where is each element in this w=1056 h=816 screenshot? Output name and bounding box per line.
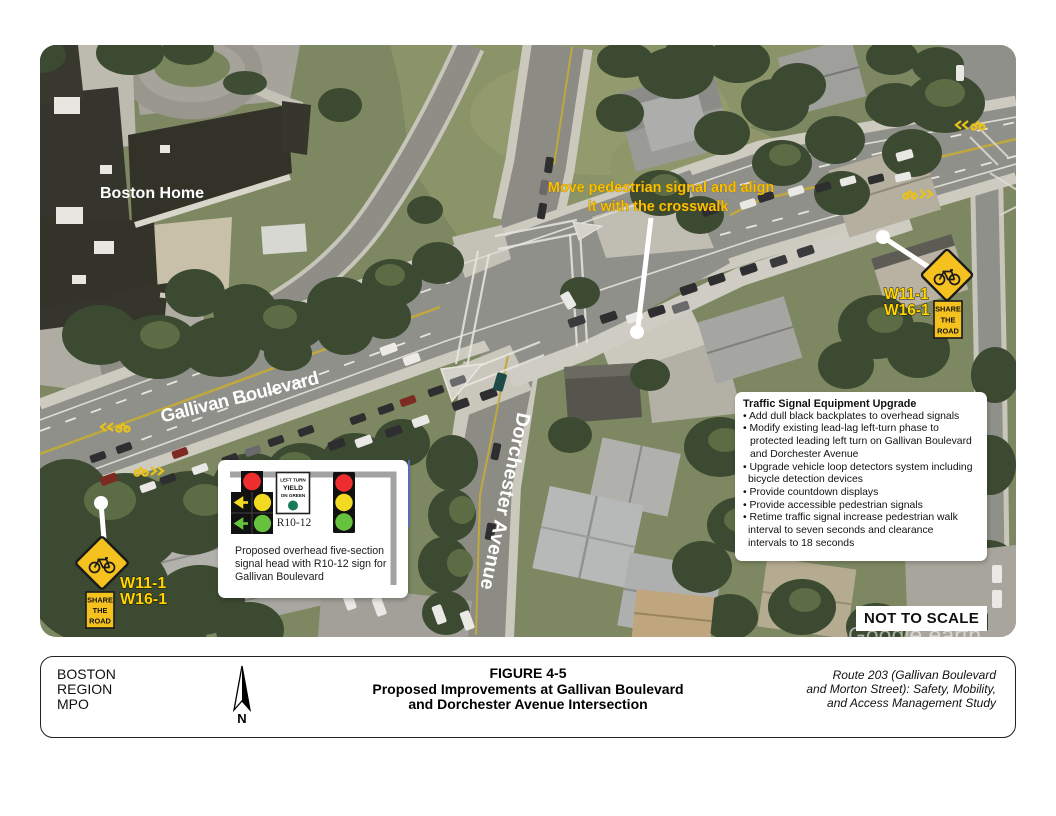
- svg-text:N: N: [237, 711, 246, 726]
- svg-text:LEFT TURN: LEFT TURN: [280, 478, 306, 483]
- svg-text:YIELD: YIELD: [283, 485, 303, 492]
- svg-text:THE: THE: [941, 316, 956, 325]
- svg-text:W11-1: W11-1: [884, 286, 929, 303]
- svg-text:Move pedestrian signal and ali: Move pedestrian signal and align: [548, 180, 774, 196]
- svg-text:it with the crosswalk: it with the crosswalk: [588, 199, 730, 215]
- svg-text:R10-12: R10-12: [277, 517, 312, 529]
- svg-text:W11-1: W11-1: [120, 575, 166, 592]
- svg-text:Boston Home: Boston Home: [100, 185, 204, 202]
- svg-text:THE: THE: [93, 606, 108, 615]
- svg-text:W16-1: W16-1: [884, 302, 930, 319]
- svg-text:W16-1: W16-1: [120, 591, 167, 608]
- svg-text:SHARE: SHARE: [935, 305, 961, 314]
- svg-text:ON GREEN: ON GREEN: [281, 493, 306, 498]
- svg-text:ROAD: ROAD: [937, 327, 959, 336]
- svg-text:ROAD: ROAD: [89, 617, 111, 626]
- svg-text:SHARE: SHARE: [87, 596, 113, 605]
